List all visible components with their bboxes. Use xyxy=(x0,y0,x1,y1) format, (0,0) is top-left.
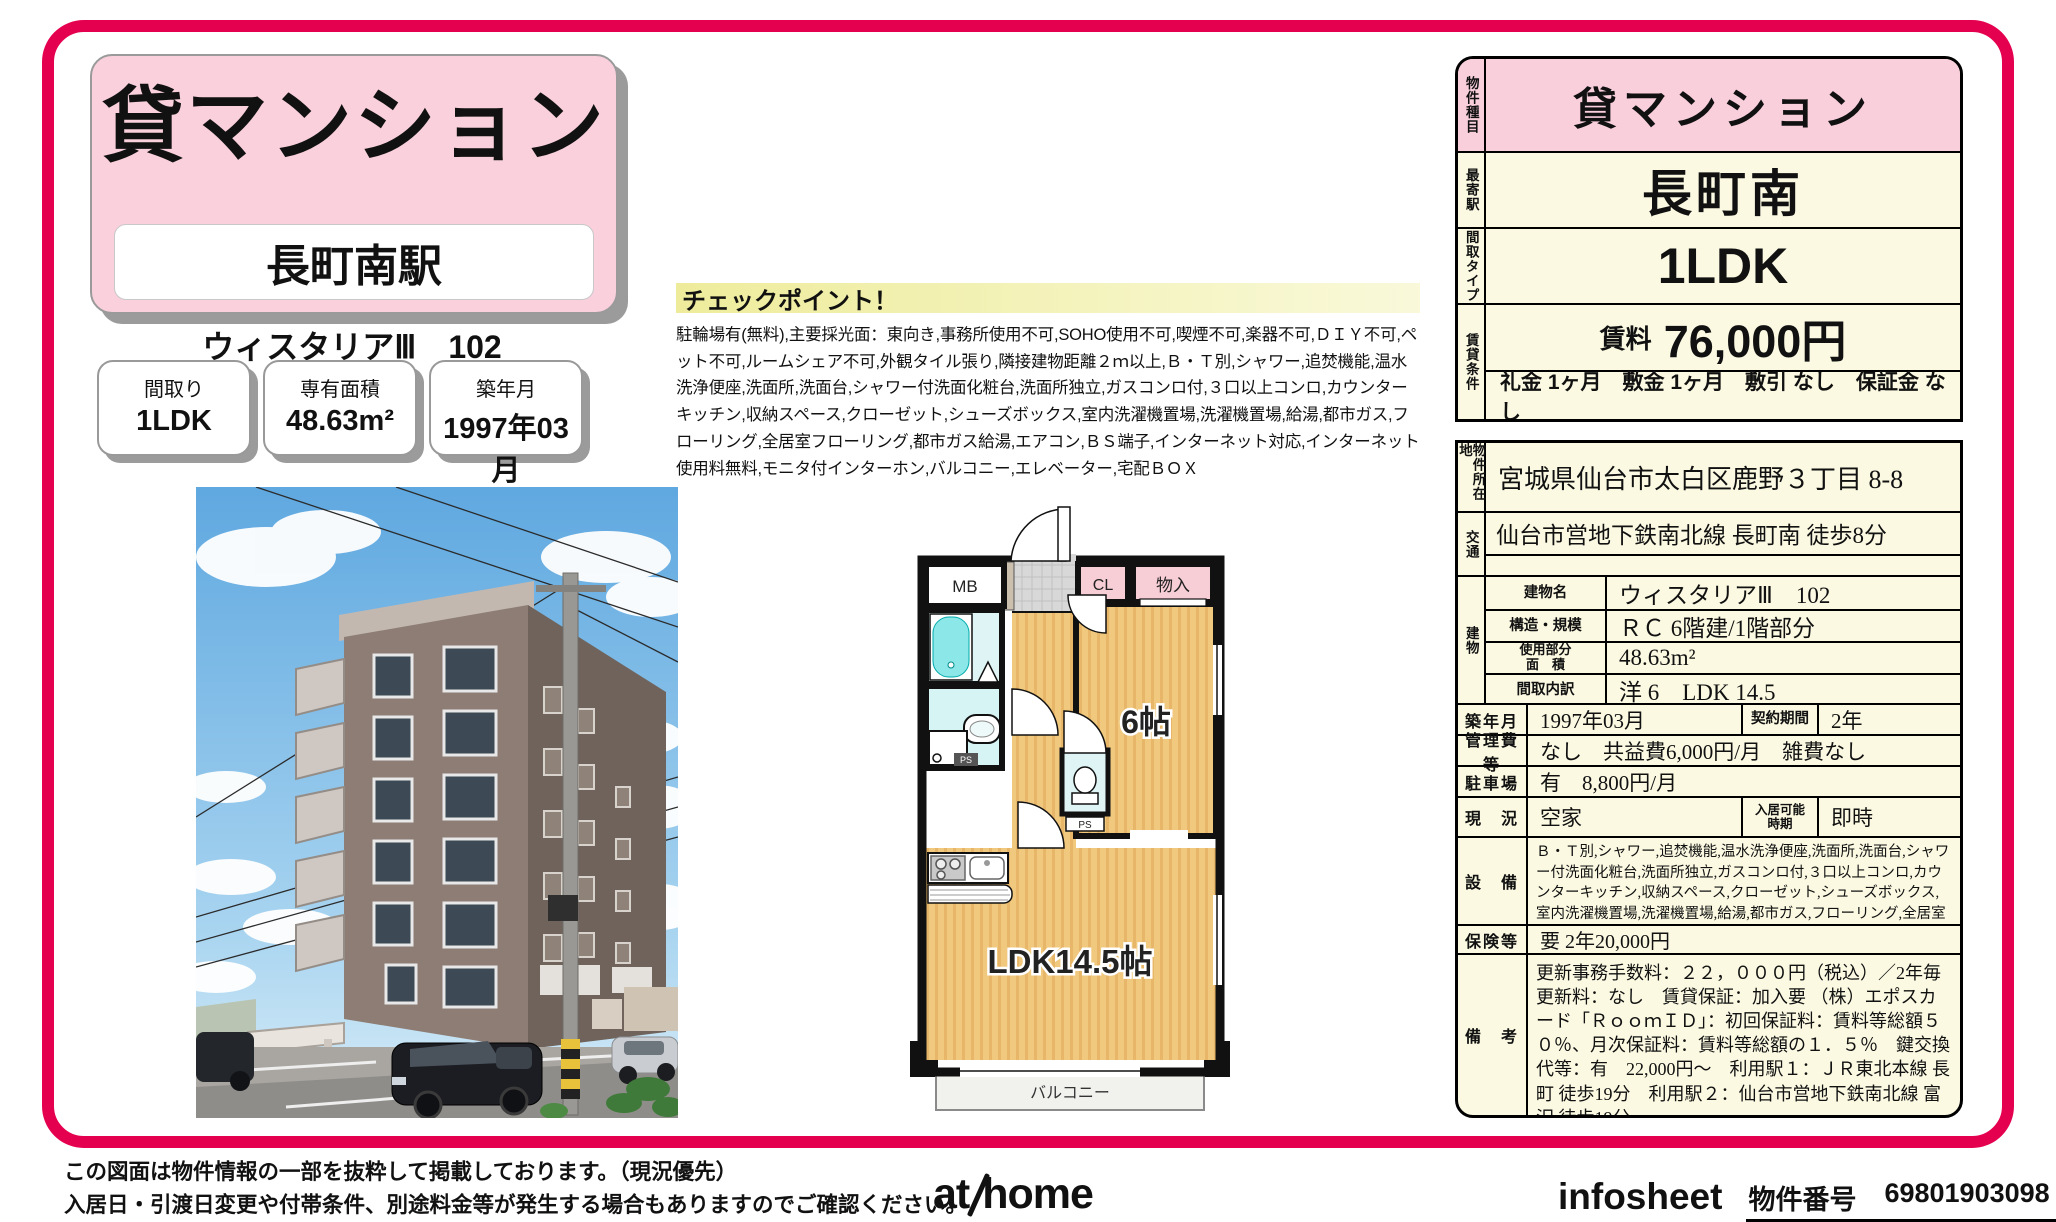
building-name: ウィスタリアⅢ 102 xyxy=(1607,577,1960,609)
summary-label: 専有面積 xyxy=(265,373,415,402)
balcony: バルコニー xyxy=(936,1072,1204,1110)
floorplan-drawing: バルコニー xyxy=(890,505,1230,1125)
row-label: 駐車場 xyxy=(1458,767,1528,796)
rent-label: 賃料 xyxy=(1600,319,1652,356)
toilet: PS xyxy=(1062,750,1108,831)
rent-terms: 礼金 1ヶ月 敷金 1ヶ月 敷引 なし 保証金 なし xyxy=(1486,370,1960,420)
logo-at: at xyxy=(933,1170,969,1219)
svg-text:MB: MB xyxy=(952,577,978,596)
athome-logo: at home xyxy=(933,1170,1093,1219)
sub-label: 使用部分 面 積 xyxy=(1486,643,1607,673)
meter-box: MB xyxy=(926,564,1004,606)
svg-text:CL: CL xyxy=(1093,577,1114,594)
row-label: 保険等 xyxy=(1458,926,1528,953)
row-label: 物件所在地 xyxy=(1458,443,1486,511)
row-label: 間取タイプ xyxy=(1458,229,1486,303)
rent-value: 76,000円 xyxy=(1664,305,1847,370)
row-label: 賃貸条件 xyxy=(1458,305,1486,419)
svg-text:物入: 物入 xyxy=(1156,576,1190,595)
station-value: 長町南 xyxy=(1486,153,1960,227)
property-detail-table: 物件所在地 宮城県仙台市太白区鹿野３丁目 8-8 交通 仙台市営地下鉄南北線 長… xyxy=(1455,440,1963,1118)
ldk-label: LDK14.5帖 xyxy=(987,943,1152,980)
property-type-value: 貸マンション xyxy=(1486,59,1960,151)
building-photo-illustration xyxy=(196,487,678,1118)
sub-label: 間取内訳 xyxy=(1486,675,1607,705)
mgmt-value: なし 共益費6,000円/月 雑費なし xyxy=(1528,736,1960,765)
property-summary-table: 物件種目 貸マンション 最寄駅 長町南 間取タイプ 1LDK 賃貸条件 賃料 7… xyxy=(1455,56,1963,422)
layout-value: 1LDK xyxy=(1486,229,1960,303)
disclaimer-line2: 入居日・引渡日変更や付帯条件、別途料金等が発生する場合もありますのでご確認くださ… xyxy=(64,1189,967,1222)
kitchen-counter xyxy=(928,853,1012,903)
summary-boxes: 間取り 1LDK 専有面積 48.63m² 築年月 1997年03月 xyxy=(97,360,583,456)
svg-text:バルコニー: バルコニー xyxy=(1030,1085,1110,1102)
building-area: 48.63m² xyxy=(1607,643,1960,673)
disclaimer-line1: この図面は物件情報の一部を抜粋して掲載しております。（現況優先） xyxy=(64,1156,967,1189)
property-number: 物件番号 69801903098 xyxy=(1746,1178,2055,1222)
property-category-title: 貸マンション xyxy=(92,56,616,172)
row-label: 物件種目 xyxy=(1458,59,1486,151)
row-label: 最寄駅 xyxy=(1458,153,1486,227)
insurance-value: 要 2年20,000円 xyxy=(1528,926,1960,953)
summary-box-layout: 間取り 1LDK xyxy=(97,360,251,456)
contract-label: 契約期間 xyxy=(1741,705,1819,734)
summary-box-built: 築年月 1997年03月 xyxy=(429,360,583,456)
summary-value: 1LDK xyxy=(99,405,249,438)
infosheet-page: 貸マンション 長町南駅 ウィスタリアⅢ 102 間取り 1LDK 専有面積 48… xyxy=(0,0,2056,1222)
summary-label: 築年月 xyxy=(431,373,581,402)
sub-label: 建物名 xyxy=(1486,577,1607,609)
checkpoint-section: チェックポイント！ 駐輪場有(無料),主要採光面：東向き,事務所使用不可,SOH… xyxy=(676,283,1420,482)
building-structure: ＲＣ 6階建/1階部分 xyxy=(1607,611,1960,641)
row-label: 備 考 xyxy=(1458,955,1528,1115)
remarks-value: 更新事務手数料：２２，０００円（税込）／2年毎 更新料：なし 賃貸保証：加入要 … xyxy=(1528,955,1960,1115)
property-number-value: 69801903098 xyxy=(1884,1178,2049,1217)
built-value: 1997年03月 xyxy=(1528,705,1741,734)
movein-value: 即時 xyxy=(1819,798,1960,836)
svg-text:PS: PS xyxy=(960,755,972,765)
floorplan: バルコニー xyxy=(890,505,1230,1125)
storage: 物入 xyxy=(1133,564,1213,606)
summary-box-area: 専有面積 48.63m² xyxy=(263,360,417,456)
summary-label: 間取り xyxy=(99,373,249,402)
parking-value: 有 8,800円/月 xyxy=(1528,767,1960,796)
building-layout-detail: 洋 6 LDK 14.5 xyxy=(1607,675,1960,705)
checkpoint-title: チェックポイント！ xyxy=(676,283,1420,313)
infosheet-footer: infosheet 物件番号 69801903098 xyxy=(1558,1176,2056,1222)
building-exterior-photo xyxy=(196,487,678,1118)
washroom: PS xyxy=(926,686,1002,768)
footer-disclaimer: この図面は物件情報の一部を抜粋して掲載しております。（現況優先） 入居日・引渡日… xyxy=(64,1156,967,1222)
logo-home: home xyxy=(982,1170,1093,1219)
address-value: 宮城県仙台市太白区鹿野３丁目 8-8 xyxy=(1486,443,1960,511)
row-label: 設 備 xyxy=(1458,838,1528,924)
access-value: 仙台市営地下鉄南北線 長町南 徒歩8分 xyxy=(1486,513,1960,554)
property-number-label: 物件番号 xyxy=(1748,1178,1856,1217)
property-category-banner: 貸マンション 長町南駅 xyxy=(90,54,618,314)
svg-text:PS: PS xyxy=(1078,820,1092,831)
bathroom xyxy=(926,610,1002,684)
checkpoint-body: 駐輪場有(無料),主要採光面：東向き,事務所使用不可,SOHO使用不可,喫煙不可… xyxy=(676,322,1420,482)
row-label: 現 況 xyxy=(1458,798,1528,836)
room6-label: 6帖 xyxy=(1121,704,1171,740)
station-banner: 長町南駅 xyxy=(114,224,594,300)
infosheet-label: infosheet xyxy=(1558,1176,1722,1218)
equipment-value: Ｂ・Ｔ別,シャワー,追焚機能,温水洗浄便座,洗面所,洗面台,シャワー付洗面化粧台… xyxy=(1528,838,1960,924)
row-label: 建物 xyxy=(1458,577,1486,703)
movein-label: 入居可能 時期 xyxy=(1741,798,1819,836)
summary-value: 1997年03月 xyxy=(431,405,581,489)
sub-label: 構造・規模 xyxy=(1486,611,1607,641)
status-value: 空家 xyxy=(1528,798,1741,836)
access-value-2 xyxy=(1486,554,1960,575)
summary-value: 48.63m² xyxy=(265,405,415,438)
row-label: 管理費等 xyxy=(1458,736,1528,765)
contract-value: 2年 xyxy=(1819,705,1960,734)
row-label: 交通 xyxy=(1458,513,1486,575)
